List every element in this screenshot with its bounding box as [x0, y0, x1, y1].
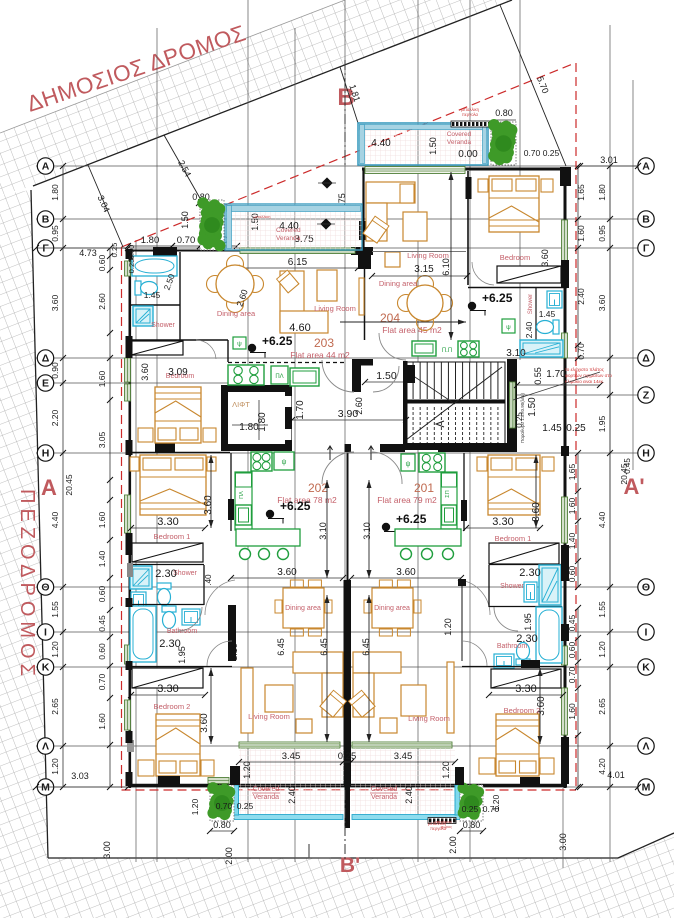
svg-text:0.25: 0.25: [110, 243, 119, 258]
svg-text:ψ: ψ: [506, 324, 511, 331]
svg-text:2.60: 2.60: [97, 293, 107, 310]
svg-text:3.10: 3.10: [506, 348, 526, 359]
svg-text:3.05: 3.05: [97, 431, 107, 448]
svg-text:Flat area 44 m2: Flat area 44 m2: [290, 350, 350, 360]
svg-text:1.55: 1.55: [50, 601, 60, 618]
svg-text:1.95: 1.95: [597, 415, 607, 432]
svg-text:0.00: 0.00: [458, 149, 478, 160]
svg-text:0.90: 0.90: [50, 362, 60, 379]
svg-text:3.60: 3.60: [50, 294, 60, 311]
svg-text:Covered: Covered: [276, 227, 301, 234]
svg-text:20.45: 20.45: [64, 474, 74, 496]
svg-text:1.50: 1.50: [428, 137, 438, 155]
svg-text:Z: Z: [643, 390, 650, 402]
svg-text:6.10: 6.10: [441, 258, 451, 276]
svg-text:2.20: 2.20: [50, 409, 60, 426]
svg-text:1.70: 1.70: [546, 369, 566, 380]
svg-text:1.20: 1.20: [491, 794, 501, 811]
svg-text:3.00: 3.00: [558, 833, 568, 851]
svg-text:0.70: 0.70: [97, 673, 107, 690]
svg-text:A: A: [42, 161, 50, 173]
svg-text:2.40: 2.40: [287, 786, 297, 804]
svg-text:3.01: 3.01: [600, 155, 618, 165]
svg-text:+6.25: +6.25: [262, 334, 293, 348]
svg-text:1.40: 1.40: [97, 550, 107, 567]
svg-text:B: B: [42, 214, 50, 226]
svg-text:0.60: 0.60: [97, 254, 107, 271]
svg-text:4.40: 4.40: [371, 138, 391, 149]
svg-text:1.60: 1.60: [567, 497, 577, 514]
svg-text:0.60: 0.60: [97, 643, 107, 660]
svg-text:H: H: [642, 448, 650, 460]
svg-text:3.10: 3.10: [318, 522, 328, 540]
svg-text:0.70: 0.70: [216, 801, 233, 811]
svg-text:1.60: 1.60: [97, 370, 107, 387]
svg-text:Flat area 45 m2: Flat area 45 m2: [382, 325, 442, 335]
svg-text:2.40: 2.40: [404, 786, 414, 804]
svg-text:μεταλλικη: μεταλλικη: [253, 214, 270, 219]
svg-text:I: I: [645, 627, 648, 639]
svg-text:0.25: 0.25: [566, 423, 586, 434]
svg-text:χωρος: χωρος: [440, 824, 452, 829]
svg-text:+6.25: +6.25: [482, 291, 513, 305]
svg-text:ΛΙΦΤ: ΛΙΦΤ: [232, 400, 250, 409]
svg-text:Shower: Shower: [173, 570, 197, 577]
svg-text:K: K: [642, 662, 650, 674]
svg-text:6.45: 6.45: [276, 638, 286, 656]
svg-text:1.20: 1.20: [242, 761, 252, 779]
svg-text:1.80: 1.80: [50, 184, 60, 201]
svg-text:Bedroom 1: Bedroom 1: [154, 532, 191, 541]
svg-text:ΣΠ: ΣΠ: [445, 490, 451, 497]
svg-text:.40: .40: [204, 574, 213, 586]
svg-text:3.45: 3.45: [394, 751, 413, 762]
svg-text:1.70: 1.70: [295, 400, 306, 420]
svg-text:K: K: [42, 662, 50, 674]
svg-text:0.80: 0.80: [495, 108, 513, 118]
svg-text:1.20: 1.20: [441, 761, 451, 779]
svg-text:0.60: 0.60: [97, 585, 107, 602]
svg-text:Veranda: Veranda: [276, 235, 301, 242]
svg-text:1.45: 1.45: [144, 290, 161, 300]
svg-text:2.65: 2.65: [50, 698, 60, 715]
svg-text:Dining area: Dining area: [379, 279, 418, 288]
svg-text:2.00: 2.00: [448, 836, 458, 854]
svg-text:Veranda: Veranda: [447, 139, 472, 146]
svg-text:Bedroom 2: Bedroom 2: [154, 702, 191, 711]
svg-text:2.65: 2.65: [597, 698, 607, 715]
svg-text:0.25: 0.25: [462, 804, 479, 814]
svg-text:1.20: 1.20: [50, 758, 60, 775]
svg-text:0.25: 0.25: [127, 259, 136, 274]
svg-text:E: E: [42, 378, 49, 390]
svg-text:1.45: 1.45: [539, 309, 556, 319]
svg-text:0.25: 0.25: [338, 751, 357, 762]
svg-text:0.45: 0.45: [97, 615, 107, 632]
svg-text:2.30: 2.30: [155, 568, 176, 580]
svg-text:ΠΛ: ΠΛ: [275, 374, 283, 380]
svg-text:2.40: 2.40: [576, 288, 586, 305]
svg-text:0.55: 0.55: [533, 367, 543, 385]
svg-text:Dining area: Dining area: [374, 605, 410, 612]
svg-text:4.73: 4.73: [79, 248, 97, 258]
svg-text:0.70: 0.70: [567, 666, 577, 683]
svg-text:1.20: 1.20: [597, 641, 607, 658]
svg-text:3.10: 3.10: [362, 522, 372, 540]
svg-text:0.45: 0.45: [623, 458, 632, 474]
svg-text:3.09: 3.09: [168, 367, 188, 378]
svg-text:3.60: 3.60: [203, 495, 214, 515]
svg-text:3.60: 3.60: [140, 363, 150, 381]
svg-text:3.45: 3.45: [282, 751, 301, 762]
svg-text:A: A: [642, 161, 650, 173]
svg-text:H: H: [42, 448, 50, 460]
svg-text:3.60: 3.60: [396, 567, 416, 578]
svg-text:1.95: 1.95: [523, 613, 533, 631]
svg-text:0.70: 0.70: [524, 148, 541, 158]
svg-text:3.15: 3.15: [414, 264, 434, 275]
svg-text:περγολα: περγολα: [462, 112, 479, 117]
svg-text:Shower: Shower: [151, 322, 175, 329]
svg-text:201: 201: [414, 481, 434, 495]
svg-text:ΠΕΖΟΔΡΟΜΟΣ: ΠΕΖΟΔΡΟΜΟΣ: [16, 489, 38, 681]
svg-text:ψ: ψ: [406, 461, 411, 468]
svg-text:Covered: Covered: [253, 786, 280, 793]
svg-text:Δ: Δ: [42, 353, 50, 365]
svg-text:2.60: 2.60: [354, 397, 364, 415]
svg-text:3.30: 3.30: [515, 683, 536, 695]
svg-text:1.65: 1.65: [576, 184, 586, 201]
svg-text:4.40: 4.40: [50, 511, 60, 528]
svg-text:Flat area 79 m2: Flat area 79 m2: [377, 495, 437, 505]
svg-text:1.20: 1.20: [190, 798, 200, 815]
svg-text:1.20: 1.20: [443, 618, 453, 636]
svg-text:Bedroom: Bedroom: [500, 253, 530, 262]
svg-text:1.60: 1.60: [576, 225, 586, 242]
svg-text:1.50: 1.50: [180, 211, 190, 229]
svg-text:0.70: 0.70: [177, 235, 196, 246]
svg-text:0.95: 0.95: [597, 225, 607, 242]
svg-text:1.60: 1.60: [97, 511, 107, 528]
svg-text:Covered: Covered: [447, 131, 472, 138]
svg-text:3.03: 3.03: [71, 771, 89, 781]
svg-text:Λ: Λ: [642, 741, 649, 753]
svg-text:2.30: 2.30: [516, 633, 537, 645]
svg-text:4.01: 4.01: [607, 770, 625, 780]
svg-text:Bedroom 1: Bedroom 1: [495, 534, 532, 543]
svg-text:B: B: [642, 214, 650, 226]
svg-text:3.60: 3.60: [277, 567, 297, 578]
svg-text:204: 204: [380, 311, 400, 325]
svg-text:1.60: 1.60: [97, 713, 107, 730]
svg-text:Shower: Shower: [528, 294, 534, 314]
svg-text:B': B': [340, 854, 360, 877]
svg-text:Λ: Λ: [42, 741, 49, 753]
svg-text:0.80: 0.80: [213, 820, 231, 830]
svg-text:6.45: 6.45: [319, 638, 329, 656]
svg-text:ΠΛ: ΠΛ: [239, 491, 245, 499]
svg-text:1.50: 1.50: [376, 370, 397, 382]
svg-text:Bathroom: Bathroom: [167, 628, 198, 635]
svg-text:0.95: 0.95: [50, 225, 60, 242]
svg-text:1.95: 1.95: [177, 646, 187, 664]
svg-text:203: 203: [314, 336, 334, 350]
svg-text:3.60: 3.60: [531, 502, 542, 522]
svg-text:M: M: [642, 782, 651, 794]
svg-text:Living Room: Living Room: [314, 304, 356, 313]
svg-text:το ελάχιστο πλάτος: το ελάχιστο πλάτος: [565, 366, 605, 372]
svg-text:Veranda: Veranda: [253, 794, 279, 801]
svg-text:1.80: 1.80: [141, 235, 160, 246]
svg-text:6.45: 6.45: [361, 638, 371, 656]
svg-text:ψ: ψ: [282, 459, 287, 466]
svg-text:M: M: [41, 782, 50, 794]
svg-text:4.20: 4.20: [597, 758, 607, 775]
svg-text:Dining area: Dining area: [217, 309, 256, 318]
svg-text:Veranda: Veranda: [371, 794, 397, 801]
svg-text:Dining area: Dining area: [285, 605, 321, 612]
svg-text:Θ: Θ: [642, 582, 650, 594]
svg-text:1.60: 1.60: [567, 703, 577, 720]
svg-text:0.25: 0.25: [237, 801, 254, 811]
svg-text:A: A: [41, 475, 57, 500]
svg-text:2.40: 2.40: [524, 321, 534, 338]
svg-text:+6.25: +6.25: [396, 512, 427, 526]
svg-text:3.60: 3.60: [540, 249, 550, 267]
svg-text:2.00: 2.00: [224, 847, 234, 865]
svg-text:3.60: 3.60: [597, 294, 607, 311]
svg-text:Living Room: Living Room: [248, 712, 290, 721]
svg-text:+6.25: +6.25: [280, 499, 311, 513]
svg-text:0.60: 0.60: [567, 641, 577, 658]
svg-text:1.50: 1.50: [527, 397, 538, 417]
svg-text:Δ: Δ: [642, 353, 650, 365]
svg-text:3.00: 3.00: [102, 841, 112, 859]
svg-text:0.25: 0.25: [543, 148, 560, 158]
svg-text:4.40: 4.40: [597, 511, 607, 528]
svg-text:I: I: [44, 627, 47, 639]
svg-text:Shower: Shower: [500, 583, 524, 590]
svg-text:Θ: Θ: [41, 582, 49, 594]
svg-text:4.60: 4.60: [289, 322, 310, 334]
svg-text:6.15: 6.15: [288, 257, 308, 268]
svg-text:3.30: 3.30: [492, 516, 513, 528]
svg-text:Living Room: Living Room: [408, 714, 450, 723]
svg-text:0.70: 0.70: [576, 343, 586, 360]
svg-text:1.45: 1.45: [542, 423, 562, 434]
svg-text:1.80: 1.80: [597, 184, 607, 201]
svg-text:0.80: 0.80: [463, 820, 481, 830]
svg-text:Γ: Γ: [643, 243, 650, 255]
svg-text:3.30: 3.30: [157, 516, 178, 528]
svg-text:1.55: 1.55: [597, 601, 607, 618]
svg-text:0.60: 0.60: [127, 245, 136, 260]
svg-text:3.30: 3.30: [157, 683, 178, 695]
svg-text:Γ: Γ: [42, 243, 49, 255]
svg-text:Covered: Covered: [371, 786, 398, 793]
svg-text:0.25: 0.25: [515, 412, 524, 428]
svg-text:ψ: ψ: [237, 341, 242, 348]
svg-text:2.30: 2.30: [519, 567, 540, 579]
svg-text:1.20: 1.20: [50, 641, 60, 658]
svg-text:1.65: 1.65: [567, 463, 577, 480]
svg-text:Π.Π: Π.Π: [442, 348, 452, 354]
